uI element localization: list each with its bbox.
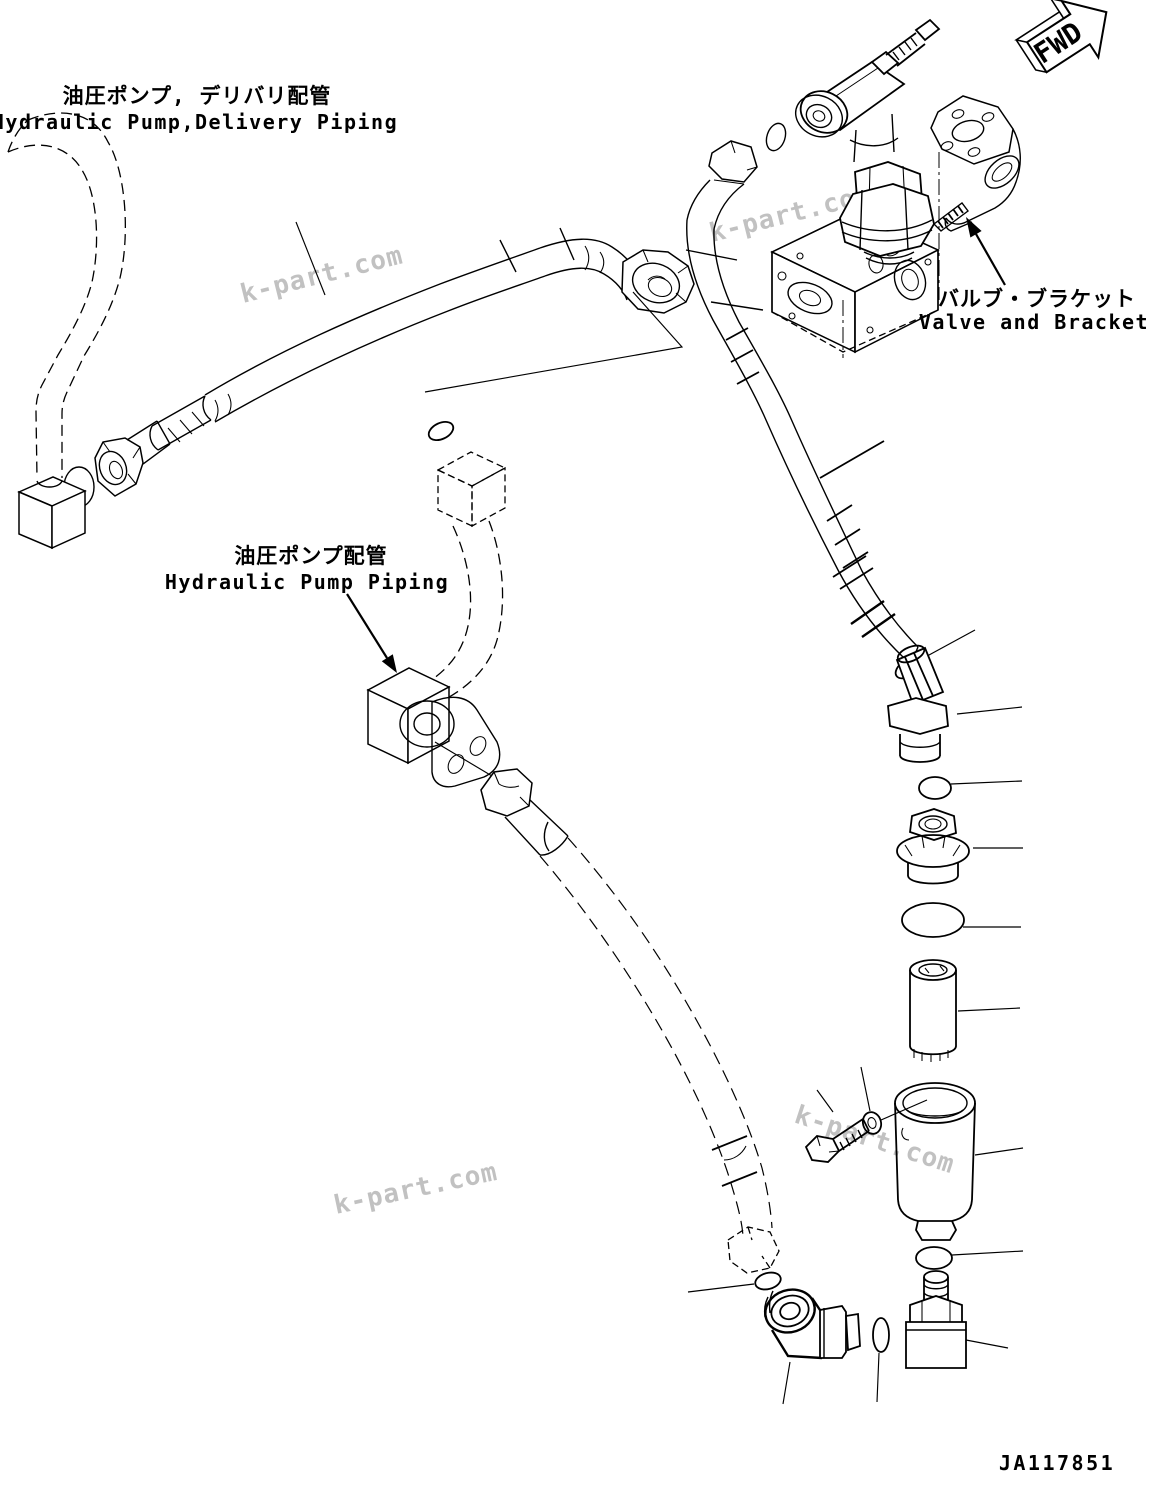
filter-exploded-parts (806, 630, 1023, 1368)
label-pump-piping-jp: 油圧ポンプ配管 (234, 544, 387, 568)
hose-nut (709, 141, 757, 184)
hose-ferrule (127, 394, 231, 464)
label-delivery-piping: 油圧ポンプ, デリバリ配管 Hydraulic Pump,Delivery Pi… (0, 84, 398, 134)
o-ring (426, 418, 456, 443)
hose-hex-collar (481, 769, 532, 816)
leader-line (783, 1362, 790, 1404)
watermark-text: k-part.com (331, 1157, 500, 1221)
label-arrow (966, 217, 1005, 285)
leader-line (820, 441, 884, 478)
hose-sleeve-band (500, 228, 604, 273)
mounting-block (368, 668, 454, 763)
o-ring (916, 1247, 952, 1269)
port-fitting (906, 1271, 966, 1368)
leader-line (952, 1251, 1023, 1255)
label-delivery-piping-en: Hydraulic Pump,Delivery Piping (0, 110, 398, 134)
label-pump-piping: 油圧ポンプ配管 Hydraulic Pump Piping (165, 544, 449, 594)
o-ring (902, 903, 964, 937)
label-arrow (347, 594, 397, 673)
leader-line (688, 1284, 754, 1292)
leader-line (951, 781, 1022, 784)
label-delivery-piping-jp: 油圧ポンプ, デリバリ配管 (63, 84, 332, 108)
pump-piping-tube (347, 418, 505, 787)
bottom-elbow-fitting (688, 1270, 889, 1404)
filter-element (910, 960, 956, 1062)
label-valve-bracket-jp: バルブ・ブラケット (938, 287, 1136, 311)
phantom-cube-fitting (438, 452, 505, 526)
delivery-piping-hose (8, 113, 694, 548)
leader-line (958, 1008, 1020, 1011)
elbow-union-fitting (760, 1283, 860, 1358)
bracket (931, 96, 1025, 231)
fwd-arrow-icon: FWD (1008, 0, 1125, 90)
leader-line (861, 1067, 870, 1111)
hose-hatch-marks (726, 328, 759, 384)
hose-nut-phantom (728, 1227, 779, 1273)
label-valve-bracket: バルブ・ブラケット Valve and Bracket (919, 287, 1149, 334)
pump-piping-hose (481, 769, 779, 1273)
elbow-adapter (888, 642, 948, 762)
leader-line (975, 1148, 1023, 1155)
flanged-cap-nut (897, 809, 969, 884)
o-ring (763, 121, 789, 153)
leader-line (966, 1340, 1008, 1348)
hose-ferrule (712, 1136, 757, 1186)
leader-line (435, 742, 492, 776)
elbow-block-fitting (19, 477, 85, 548)
o-ring-side (873, 1318, 889, 1352)
watermark-text: k-part.com (237, 240, 406, 309)
o-ring (753, 1270, 782, 1292)
label-valve-bracket-en: Valve and Bracket (919, 310, 1149, 334)
fwd-arrow-label: FWD (1028, 15, 1088, 70)
leader-line (877, 1353, 879, 1402)
hose-nut (95, 438, 143, 496)
drawing-number: JA117851 (999, 1451, 1115, 1475)
hose-nut (622, 250, 694, 313)
leader-line (957, 707, 1022, 714)
label-pump-piping-en: Hydraulic Pump Piping (165, 570, 449, 594)
parts-diagram-page: k-part.com k-part.com k-part.com k-part.… (0, 0, 1149, 1491)
relief-valve (789, 20, 939, 264)
o-ring (919, 777, 951, 799)
